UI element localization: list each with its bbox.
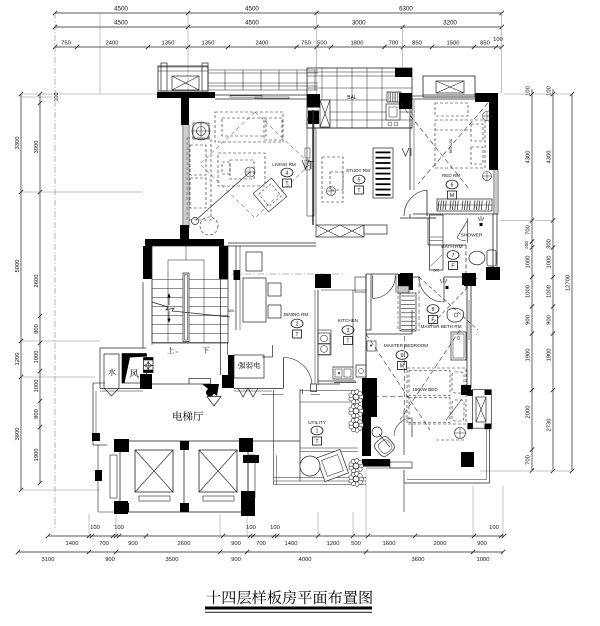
svg-text:900: 900 bbox=[547, 315, 553, 325]
svg-text:1000: 1000 bbox=[34, 380, 40, 393]
svg-text:4000: 4000 bbox=[299, 557, 312, 563]
svg-text:100: 100 bbox=[489, 525, 499, 531]
svg-text:100: 100 bbox=[114, 525, 124, 531]
svg-text:KITCHEN: KITCHEN bbox=[338, 318, 358, 323]
svg-text:2000: 2000 bbox=[526, 406, 532, 419]
svg-text:7: 7 bbox=[452, 253, 455, 259]
svg-text:6300: 6300 bbox=[399, 6, 413, 13]
svg-text:LIVING RM: LIVING RM bbox=[272, 162, 296, 167]
svg-text:BATH RM: BATH RM bbox=[441, 244, 462, 250]
svg-text:900: 900 bbox=[128, 541, 138, 547]
svg-text:500: 500 bbox=[317, 41, 327, 47]
svg-text:1350: 1350 bbox=[202, 41, 215, 47]
svg-text:750: 750 bbox=[301, 41, 311, 47]
svg-text:9: 9 bbox=[401, 353, 404, 359]
svg-text:STUDY RM: STUDY RM bbox=[346, 168, 370, 173]
svg-text:4500: 4500 bbox=[245, 6, 259, 13]
svg-text:200: 200 bbox=[524, 241, 529, 249]
svg-text:2: 2 bbox=[296, 322, 299, 328]
svg-text:F: F bbox=[431, 318, 434, 324]
svg-text:RED RM: RED RM bbox=[442, 173, 460, 178]
svg-text:4500: 4500 bbox=[114, 20, 128, 27]
svg-text:750: 750 bbox=[61, 41, 71, 47]
svg-text:100: 100 bbox=[270, 525, 280, 531]
svg-text:900: 900 bbox=[477, 541, 487, 547]
svg-text:1600: 1600 bbox=[383, 541, 396, 547]
svg-text:900: 900 bbox=[231, 541, 241, 547]
svg-text:2400: 2400 bbox=[256, 41, 269, 47]
svg-text:MASTER BETH RM: MASTER BETH RM bbox=[420, 324, 461, 329]
svg-text:900: 900 bbox=[526, 315, 532, 325]
svg-text:1000: 1000 bbox=[547, 285, 553, 298]
svg-text:1800: 1800 bbox=[351, 41, 364, 47]
svg-text:700: 700 bbox=[526, 455, 532, 465]
svg-text:1000: 1000 bbox=[34, 351, 40, 364]
svg-text:4500: 4500 bbox=[245, 20, 259, 27]
svg-text:1900: 1900 bbox=[34, 449, 40, 462]
svg-text:700: 700 bbox=[256, 541, 266, 547]
svg-text:1: 1 bbox=[316, 429, 319, 435]
svg-text:3500: 3500 bbox=[166, 557, 179, 563]
svg-text:100: 100 bbox=[246, 525, 256, 531]
svg-text:5000: 5000 bbox=[15, 260, 21, 273]
svg-text:1900: 1900 bbox=[526, 349, 532, 362]
svg-text:SHOWER: SHOWER bbox=[461, 233, 483, 239]
svg-text:300: 300 bbox=[228, 308, 235, 313]
svg-text:900: 900 bbox=[231, 557, 241, 563]
svg-text:M: M bbox=[400, 364, 404, 370]
svg-text:1350: 1350 bbox=[162, 41, 175, 47]
svg-text:500: 500 bbox=[351, 541, 361, 547]
svg-text:BAL: BAL bbox=[347, 95, 357, 101]
svg-text:3: 3 bbox=[347, 328, 350, 334]
svg-text:3000: 3000 bbox=[352, 20, 366, 27]
svg-text:900: 900 bbox=[105, 557, 115, 563]
svg-text:2000: 2000 bbox=[434, 541, 447, 547]
svg-text:1000: 1000 bbox=[526, 256, 532, 269]
svg-text:1900: 1900 bbox=[547, 349, 553, 362]
svg-text:DINING RM: DINING RM bbox=[284, 312, 309, 317]
svg-text:4500: 4500 bbox=[114, 6, 128, 13]
svg-text:700: 700 bbox=[99, 541, 109, 547]
svg-text:100: 100 bbox=[493, 37, 503, 43]
svg-text:100: 100 bbox=[526, 86, 532, 96]
svg-text:2600: 2600 bbox=[178, 541, 191, 547]
svg-text:M: M bbox=[450, 193, 454, 199]
svg-text:3300: 3300 bbox=[15, 137, 21, 150]
svg-text:1200: 1200 bbox=[327, 541, 340, 547]
svg-text:F: F bbox=[451, 264, 454, 270]
svg-text:1000: 1000 bbox=[477, 557, 490, 563]
svg-text:1800W BED: 1800W BED bbox=[412, 387, 438, 392]
svg-text:1000: 1000 bbox=[547, 256, 553, 269]
svg-text:850: 850 bbox=[412, 41, 422, 47]
svg-text:3000: 3000 bbox=[34, 141, 40, 154]
svg-text:2600: 2600 bbox=[34, 275, 40, 288]
svg-text:MASTER BEDROOM: MASTER BEDROOM bbox=[384, 343, 428, 348]
svg-text:3200: 3200 bbox=[443, 20, 457, 27]
svg-text:700: 700 bbox=[389, 41, 399, 47]
svg-text:1500: 1500 bbox=[447, 41, 460, 47]
svg-text:UTILITY: UTILITY bbox=[308, 420, 327, 426]
svg-text:900: 900 bbox=[34, 409, 40, 419]
svg-text:1200: 1200 bbox=[15, 353, 21, 366]
svg-text:6: 6 bbox=[451, 183, 454, 189]
svg-text:1000: 1000 bbox=[526, 285, 532, 298]
svg-text:4300: 4300 bbox=[547, 151, 553, 164]
svg-text:4: 4 bbox=[286, 171, 289, 177]
svg-text:3100: 3100 bbox=[42, 557, 55, 563]
svg-text:12700: 12700 bbox=[566, 275, 572, 291]
svg-text:2400: 2400 bbox=[106, 41, 119, 47]
svg-text:300: 300 bbox=[547, 239, 553, 249]
svg-text:900: 900 bbox=[34, 324, 40, 334]
svg-text:5: 5 bbox=[358, 178, 361, 184]
svg-text:8: 8 bbox=[432, 307, 435, 313]
svg-text:3800: 3800 bbox=[15, 428, 21, 441]
svg-text:1400: 1400 bbox=[285, 541, 298, 547]
svg-text:4300: 4300 bbox=[526, 151, 532, 164]
svg-text:100: 100 bbox=[90, 525, 100, 531]
svg-text:2730: 2730 bbox=[547, 419, 553, 432]
svg-text:850: 850 bbox=[480, 41, 490, 47]
svg-text:700: 700 bbox=[526, 225, 532, 235]
svg-text:G05: G05 bbox=[433, 269, 439, 273]
svg-text:3600: 3600 bbox=[412, 557, 425, 563]
svg-text:1400: 1400 bbox=[66, 541, 79, 547]
svg-text:100: 100 bbox=[547, 86, 553, 96]
